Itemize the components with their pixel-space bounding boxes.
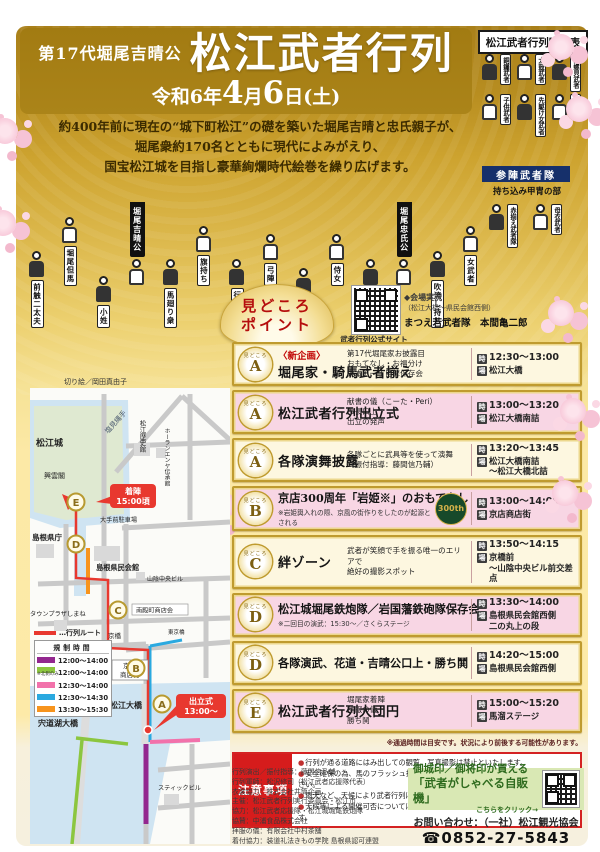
svg-text:着陣: 着陣 <box>124 486 141 496</box>
divider <box>471 647 472 679</box>
schedule-row-main: 松江武者行列大団円 <box>278 701 347 720</box>
promo-qr-code[interactable] <box>543 771 579 807</box>
schedule-title: 各隊演舞披露 <box>278 451 344 470</box>
schedule-time-place: 時13:50～14:15場京橋前 ～山陰中央ビル前交差点 <box>477 539 575 585</box>
route-legend-label: …行列ルート <box>59 628 101 638</box>
map-label-stick-bldg: スティックビル <box>158 784 201 792</box>
divider <box>471 541 472 583</box>
regulation-times-table: 規制時間 12:00～14:00※北側のみ12:00～14:0012:30～14… <box>34 640 112 717</box>
warrior-figure-icon <box>61 217 79 244</box>
procession-figure: 女武者 <box>462 226 480 287</box>
place-icon: 場 <box>477 457 487 467</box>
legend-time: 13:30～15:30 <box>58 704 108 714</box>
map-label-kenmin-hall: 島根県民会館 <box>96 563 139 572</box>
time-icon: 時 <box>477 541 487 551</box>
schedule-row: 見どころA〈新企画〉堀尾家・騎馬武者揃え第17代堀尾家お披露目 おもてなし・お福… <box>232 342 582 386</box>
sanjin-figure: 母衣武者 <box>532 204 562 248</box>
kyomise-300-logo: 300th <box>435 493 467 525</box>
warrior-figure-icon <box>488 204 506 231</box>
lineup-figure: 法螺貝武者 <box>551 54 583 92</box>
svg-text:出立式: 出立式 <box>189 696 213 706</box>
intro-text: 約400年前に現在の“城下町松江”の礎を築いた堀尾吉晴と忠氏親子が、 堀尾衆約1… <box>40 117 480 177</box>
time-icon: 時 <box>477 354 487 364</box>
schedule-time-place: 時13:20～13:45場松江大橋南詰 ～松江大橋北詰 <box>477 443 575 478</box>
highlight-badge: 見どころD <box>239 598 272 631</box>
time-value: 13:50～14:15 <box>489 540 559 551</box>
contact-phone: ☎0852-27-5843 <box>404 829 588 847</box>
credit-line: 協賛：中浦食品株式会社 <box>232 817 404 827</box>
map-badge-d: D <box>72 540 80 551</box>
warrior-figure-icon <box>462 226 480 253</box>
place-value: 島根県民会館西側 二の丸上の段 <box>489 610 556 631</box>
figure-label: 堀尾但馬 <box>64 246 77 286</box>
time-icon: 時 <box>477 652 487 662</box>
highlight-badge: 見どころB <box>239 492 272 525</box>
figure-label: 旗持ち <box>197 255 210 287</box>
time-value: 13:00～14:00 <box>489 497 559 508</box>
place-value: 馬溜ステージ <box>489 711 539 722</box>
map-badge-c: C <box>114 606 121 617</box>
map-label-pref-office: 島根県庁 <box>32 532 62 542</box>
place-icon: 場 <box>477 510 487 520</box>
figure-label: 法螺貝武者 <box>570 54 581 92</box>
schedule-title: 松江武者行列出立式 <box>278 403 344 422</box>
vending-machine-promo[interactable]: 御城印／御将印が買える 「武者がしゃべる自販機」 こちらをクリック→ <box>408 768 584 810</box>
procession-figure: 前触二太夫 <box>28 251 46 329</box>
highlight-badge: 見どころA <box>239 396 272 429</box>
sanjin-figure: 赤揃え武者隊 <box>488 204 518 248</box>
legend-chip-wrap: ※北側のみ <box>37 667 55 678</box>
warrior-figure-icon <box>551 94 569 121</box>
figure-label: 小姓 <box>97 305 110 328</box>
figure-label: 銅鑼武者 <box>500 54 511 85</box>
promo-line2: 「武者がしゃべる自販機」 <box>413 776 538 806</box>
schedule-row: 見どころB京店300周年「岩姫※」のおもてなし※岩姫輿入れの際、京風の街作りをし… <box>232 486 582 531</box>
credit-line: 協力：松江武者応援隊・松江城堀尾鉄炮隊 <box>232 807 404 817</box>
lineup-figure: 太鼓武者 <box>516 54 548 92</box>
credit-line: 主催：松江武者行列実行委員会・松江市 <box>232 797 404 807</box>
header-band: 第17代堀尾吉晴公 松江武者行列 令和6年4月6日(土) <box>20 28 472 114</box>
map-label-town-plaza: タウンプラザしまね <box>30 610 86 618</box>
schedule-row: 見どころA松江武者行列出立式献書の儀（こーた・Peri） 市長口上 出立の発声時… <box>232 390 582 434</box>
legend-color-chip <box>37 657 55 663</box>
time-value: 13:00～13:20 <box>489 401 559 412</box>
lineup-figure: 先駆け女武者 <box>516 94 548 138</box>
place-icon: 場 <box>477 414 487 424</box>
warrior-figure-icon <box>195 226 213 253</box>
legend-time: 12:30～14:00 <box>58 680 108 690</box>
warrior-figure-icon <box>532 204 550 231</box>
schedule-row: 見どころE松江武者行列大団円堀尾家着陣 拝服の儀 勝ち鬨時15:00～15:20… <box>232 689 582 733</box>
warrior-figure-icon <box>95 276 113 303</box>
contact-block: お問い合わせ：（一社）松江観光協会 ☎0852-27-5843 <box>404 814 588 847</box>
map-label-kounkaku: 興雲閣 <box>44 471 65 480</box>
map-badge-e: E <box>73 498 80 509</box>
legend-row: 12:00～14:00 <box>37 654 109 666</box>
legend-header: 規制時間 <box>37 642 109 654</box>
time-line: 時13:20～13:45 <box>477 444 575 455</box>
schedule-row-main: 京店300周年「岩姫※」のおもてなし※岩姫輿入れの際、京風の街作りをしたのが起源… <box>278 490 435 527</box>
warrior-figure-icon <box>162 259 180 286</box>
procession-figure: 小姓 <box>95 276 113 328</box>
time-line: 時13:50～14:15 <box>477 540 575 551</box>
schedule-row-main: 絆ゾーン <box>278 552 347 571</box>
lineup-figure: 槍武者 <box>551 94 583 138</box>
time-value: 13:20～13:45 <box>489 444 559 455</box>
map-badge-b: B <box>132 664 140 675</box>
schedule-title: 京店300周年「岩姫※」のおもてなし <box>278 490 432 506</box>
legend-color-chip <box>37 682 55 688</box>
badge-letter: A <box>250 359 262 374</box>
figure-label: 赤揃え武者隊 <box>507 204 518 248</box>
sanjin-subtitle: 持ち込み甲冑の部 <box>478 185 576 197</box>
procession-figure: 弓陣 <box>262 234 280 286</box>
time-line: 時13:30～14:00 <box>477 598 575 609</box>
highlight-badge: 見どころA <box>239 348 272 381</box>
place-line: 場松江大橋南詰 ～松江大橋北詰 <box>477 456 575 477</box>
map-label-sanin-bldg: 山陰中央ビル <box>147 575 183 583</box>
time-icon: 時 <box>477 498 487 508</box>
schedule-time-place: 時15:00～15:20場馬溜ステージ <box>477 698 575 723</box>
figure-label: 弓陣 <box>264 263 277 286</box>
schedule-footnote: ※通過時間は目安です。状況により前後する可能性があります。 <box>387 737 582 747</box>
place-icon: 場 <box>477 553 487 563</box>
schedule-row: 見どころD松江城堀尾鉄炮隊／岩国藩鉄砲隊保存会※二回目の演武：15:30～／さく… <box>232 593 582 637</box>
map-label-otemae-parking: 大手前駐車場 <box>100 516 137 524</box>
legend-color-chip <box>37 706 55 712</box>
figure-label: 前触二太夫 <box>31 280 44 329</box>
schedule-title: 絆ゾーン <box>278 552 344 571</box>
schedule-row: 見どころA各隊演舞披露各隊ごとに武具等を使って演舞 （振付指導：藤間信乃輔）時1… <box>232 438 582 482</box>
legend-row: 12:30～14:00 <box>37 679 109 691</box>
badge-letter: D <box>249 658 262 673</box>
official-site-qr-code[interactable] <box>352 286 400 334</box>
procession-figure: 堀尾吉晴公 <box>128 202 146 286</box>
place-line: 場京橋前 ～山陰中央ビル前交差点 <box>477 552 575 584</box>
schedule-title: 各隊演武、花道・吉晴公口上・勝ち鬨 <box>278 655 467 671</box>
live-commentary-note: ◆会場実況 （松江大橋～県民会館西側） まつえ若武者隊 本間亀二郎 <box>404 292 554 329</box>
place-line: 場馬溜ステージ <box>477 711 575 722</box>
figure-label: 先駆け女武者 <box>535 94 546 138</box>
contact-org: お問い合わせ：（一社）松江観光協会 <box>404 814 588 829</box>
fan-line2: ポイント <box>241 316 313 336</box>
warrior-figure-icon <box>429 251 447 278</box>
lineup-figure: 銅鑼武者 <box>481 54 513 92</box>
map-badge-a: A <box>158 700 166 711</box>
badge-letter: B <box>249 504 262 519</box>
schedule-row-main: 各隊演武、花道・吉晴公口上・勝ち鬨 <box>278 655 470 671</box>
place-value: 松江大橋南詰 <box>489 413 539 424</box>
time-value: 12:30～13:00 <box>489 353 559 364</box>
schedule-list: 見どころA〈新企画〉堀尾家・騎馬武者揃え第17代堀尾家お披露目 おもてなし・お福… <box>232 342 582 828</box>
schedule-row: 見どころC絆ゾーン武者が笑顔で手を振る唯一のエリアで 絶好の撮影スポット時13:… <box>232 535 582 589</box>
schedule-details: 献書の儀（こーた・Peri） 市長口上 出立の発声 <box>347 397 470 428</box>
figure-label: 子供武者 <box>500 94 511 125</box>
divider <box>471 695 472 727</box>
schedule-row: 見どころD各隊演武、花道・吉晴公口上・勝ち鬨時14:20～15:00場島根県民会… <box>232 641 582 685</box>
event-poster: 第17代堀尾吉晴公 松江武者行列 令和6年4月6日(土) 松江武者行列隊列表 約… <box>0 0 600 852</box>
procession-figure: 馬廻り衆 <box>162 259 180 328</box>
divider <box>471 396 472 428</box>
credit-line: 拝服の儀：有限会社中村茶舗 <box>232 827 404 837</box>
figure-label: 槍武者 <box>570 94 581 119</box>
highlight-badge: 見どころC <box>239 545 272 578</box>
schedule-time-place: 時12:30～13:00場松江大橋 <box>477 352 575 377</box>
schedule-details: 各隊ごとに武具等を使って演舞 （振付指導：藤間信乃輔） <box>347 450 470 471</box>
legend-chip-wrap <box>37 694 55 700</box>
schedule-row-main: 各隊演舞披露 <box>278 451 347 470</box>
warrior-figure-icon <box>228 259 246 286</box>
badge-letter: A <box>250 407 262 422</box>
banner-flag-label: 堀尾忠氏公 <box>397 202 412 257</box>
new-plan-tag: 〈新企画〉 <box>278 348 344 362</box>
route-line-sample <box>34 631 56 635</box>
place-value: 島根県民会館西側 <box>489 663 556 674</box>
era-title: 第17代堀尾吉晴公 <box>38 46 181 62</box>
credit-line: 衣裳協力：株式会社井筒企画 <box>232 788 404 798</box>
badge-letter: C <box>250 557 262 572</box>
place-icon: 場 <box>477 712 487 722</box>
place-value: 松江大橋 <box>489 365 523 376</box>
place-icon: 場 <box>477 366 487 376</box>
time-line: 時12:30～13:00 <box>477 353 575 364</box>
figure-label: 馬廻り衆 <box>164 288 177 328</box>
highlight-badge: 見どころE <box>239 694 272 727</box>
map-label-higashi-kyobashi: 東京橋 <box>168 628 185 636</box>
page-title: 松江武者行列 <box>190 33 454 75</box>
time-value: 13:30～14:00 <box>489 598 559 609</box>
time-icon: 時 <box>477 445 487 455</box>
warrior-figure-icon <box>551 54 569 81</box>
legend-time: 12:00～14:00 <box>58 655 108 665</box>
schedule-details: 第17代堀尾家お披露目 おもてなし・お福分け 東本町一丁目鼕保存会 <box>347 349 470 380</box>
legend-color-chip <box>37 694 55 700</box>
credit-line: 行列演出／振付指導：藤間信乃輔 <box>232 768 404 778</box>
warrior-figure-icon <box>362 259 380 286</box>
schedule-time-place: 時14:20～15:00場島根県民会館西側 <box>477 650 575 675</box>
figure-label: 太鼓武者 <box>535 54 546 85</box>
route-map: 塩見縄手 松江城 興雲閣 松江歴史館 ホーランエンヤ伝承館 大手前駐車場 島根県… <box>30 388 230 844</box>
place-line: 場松江大橋南詰 <box>477 413 575 424</box>
schedule-note: ※二回目の演武：15:30～／さくらステージ <box>278 618 467 628</box>
place-line: 場島根県民会館西側 <box>477 663 575 674</box>
schedule-row-main: 松江城堀尾鉄炮隊／岩国藩鉄砲隊保存会※二回目の演武：15:30～／さくらステージ <box>278 601 470 628</box>
figure-label: 母衣武者 <box>551 204 562 235</box>
departure-point-dot <box>144 726 152 734</box>
place-value: 松江大橋南詰 ～松江大橋北詰 <box>489 456 548 477</box>
warrior-figure-icon <box>395 259 413 286</box>
promo-line1: 御城印／御将印が買える <box>413 763 538 777</box>
schedule-row-main: 松江武者行列出立式 <box>278 403 347 422</box>
warrior-figure-icon <box>328 234 346 261</box>
credit-line: 行列軍師：松沢修司（松江武者応援隊代表） <box>232 778 404 788</box>
time-value: 14:20～15:00 <box>489 651 559 662</box>
place-icon: 場 <box>477 664 487 674</box>
event-date: 令和6年4月6日(土) <box>20 78 472 109</box>
place-line: 場島根県民会館西側 二の丸上の段 <box>477 610 575 631</box>
warrior-figure-icon <box>262 234 280 261</box>
legend-time: 12:00～14:00 <box>58 667 108 677</box>
time-line: 時13:00～14:00 <box>477 497 575 508</box>
warrior-figure-icon <box>28 251 46 278</box>
lineup-figure: 子供武者 <box>481 94 513 138</box>
warrior-figure-icon <box>481 94 499 121</box>
time-value: 15:00～15:20 <box>489 699 559 710</box>
legend-chip-wrap <box>37 706 55 712</box>
procession-figure: 侍女 <box>328 234 346 286</box>
badge-letter: D <box>249 610 262 625</box>
divider <box>471 444 472 476</box>
place-value: 京橋前 ～山陰中央ビル前交差点 <box>489 552 575 584</box>
lineup-figures: 銅鑼武者太鼓武者法螺貝武者子供武者先駆け女武者槍武者 <box>481 54 587 137</box>
time-icon: 時 <box>477 402 487 412</box>
place-line: 場松江大橋 <box>477 365 575 376</box>
highlight-badge: 見どころA <box>239 444 272 477</box>
place-value: 京店商店街 <box>489 509 531 520</box>
map-legend: …行列ルート 規制時間 12:00～14:00※北側のみ12:00～14:001… <box>34 628 112 717</box>
warrior-figure-icon <box>516 54 534 81</box>
divider <box>471 492 472 525</box>
time-icon: 時 <box>477 599 487 609</box>
place-icon: 場 <box>477 611 487 621</box>
map-label-matsue-ohashi: 松江大橋 <box>110 700 143 710</box>
badge-letter: E <box>250 706 261 721</box>
divider <box>471 599 472 631</box>
schedule-time-place: 時13:00～14:00場京店商店街 <box>477 496 575 521</box>
legend-chip-note: ※北側のみ <box>37 673 55 678</box>
procession-figure: 旗持ち <box>195 226 213 287</box>
lineup-panel-title: 松江武者行列隊列表 <box>478 30 588 54</box>
divider <box>471 348 472 380</box>
legend-row: 12:30～14:30 <box>37 691 109 703</box>
place-line: 場京店商店街 <box>477 509 575 520</box>
map-label-nandencho: 南殿町商店会 <box>136 607 173 615</box>
time-line: 時14:20～15:00 <box>477 651 575 662</box>
warrior-figure-icon <box>481 54 499 81</box>
figure-label: 女武者 <box>464 255 477 287</box>
figure-label: 侍女 <box>331 263 344 286</box>
map-label-history-museum: 松江歴史館 <box>138 419 146 454</box>
legend-time: 12:30～14:30 <box>58 692 108 702</box>
credits-list: 行列演出／振付指導：藤間信乃輔行列軍師：松沢修司（松江武者応援隊代表）衣裳協力：… <box>232 768 404 846</box>
map-label-horan-enya: ホーランエンヤ伝承館 <box>163 428 170 487</box>
legend-chip-wrap <box>37 657 55 663</box>
fan-line1: 見どころ <box>241 297 313 317</box>
time-icon: 時 <box>477 700 487 710</box>
credit-line: 着付協力：装道礼法きもの学院 島根県認可連盟 <box>232 837 404 847</box>
warrior-figure-icon <box>516 94 534 121</box>
time-line: 時15:00～15:20 <box>477 699 575 710</box>
procession-figure: 堀尾但馬 <box>61 217 79 286</box>
map-label-matsue-castle: 松江城 <box>36 437 63 449</box>
schedule-details: 堀尾家着陣 拝服の儀 勝ち鬨 <box>347 695 470 726</box>
schedule-title: 松江城堀尾鉄炮隊／岩国藩鉄砲隊保存会 <box>278 601 467 617</box>
schedule-title: 松江武者行列大団円 <box>278 701 344 720</box>
legend-chip-wrap <box>37 682 55 688</box>
schedule-details: 武者が笑顔で手を振る唯一のエリアで 絶好の撮影スポット <box>347 546 470 577</box>
legend-row: 13:30～15:30 <box>37 703 109 715</box>
time-line: 時13:00～13:20 <box>477 401 575 412</box>
sanjin-figures: 赤揃え武者隊母衣武者 <box>488 204 562 248</box>
highlight-badge: 見どころD <box>239 646 272 679</box>
bullet-icon: ● <box>298 758 304 767</box>
svg-text:13:00～: 13:00～ <box>184 707 217 716</box>
schedule-row-main: 〈新企画〉堀尾家・騎馬武者揃え <box>278 348 347 381</box>
procession-figure: 堀尾忠氏公 <box>395 202 413 286</box>
schedule-time-place: 時13:30～14:00場島根県民会館西側 二の丸上の段 <box>477 597 575 632</box>
legend-row: ※北側のみ12:00～14:00 <box>37 666 109 679</box>
badge-letter: A <box>250 455 262 470</box>
schedule-note: ※岩姫輿入れの際、京風の街作りをしたのが起源とされる <box>278 507 432 527</box>
cherry-blossom-decoration <box>0 210 16 236</box>
schedule-title: 堀尾家・騎馬武者揃え <box>278 362 344 381</box>
banner-flag-label: 堀尾吉晴公 <box>130 202 145 257</box>
warrior-figure-icon <box>128 259 146 286</box>
svg-text:15:00頃: 15:00頃 <box>116 496 150 506</box>
sanjin-busha-tai-banner: 参陣武者隊 <box>482 166 570 182</box>
artwork-credit: 切り絵／岡田真由子 <box>64 377 127 387</box>
route-pink <box>150 740 200 742</box>
schedule-time-place: 時13:00～13:20場松江大橋南詰 <box>477 400 575 425</box>
map-label-shinjiko-ohashi: 宍道湖大橋 <box>38 718 79 728</box>
